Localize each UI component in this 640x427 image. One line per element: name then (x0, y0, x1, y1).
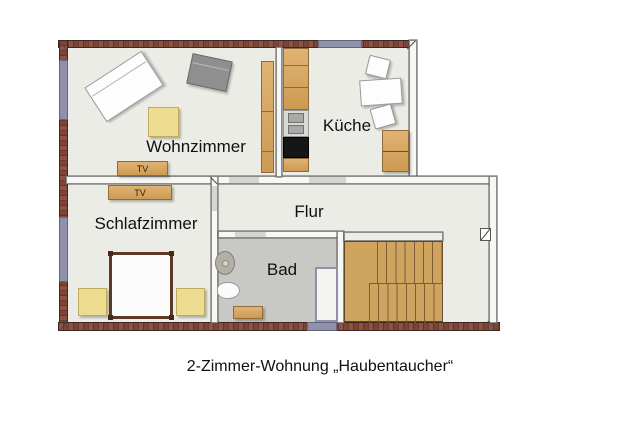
plan-caption: 2-Zimmer-Wohnung „Haubentaucher“ (0, 358, 640, 376)
room-label-flur: Flur (280, 202, 338, 222)
door-opening-kitchen (309, 177, 346, 183)
toilet (217, 282, 240, 299)
double-bed (109, 252, 173, 319)
bathroom-sink (215, 251, 235, 275)
bed-post (169, 315, 174, 320)
tv-lowboard-bedroom-text: TV (134, 188, 146, 198)
kitchen-table (359, 78, 403, 107)
bedroom-window-left (59, 217, 68, 282)
room-label-kueche: Küche (308, 116, 386, 136)
nightstand-right (176, 288, 205, 316)
wall-middle-horizontal (66, 176, 497, 184)
entry-door-symbol (480, 228, 491, 241)
shower (315, 267, 338, 322)
tv-lowboard-livingroom: TV (117, 161, 168, 176)
wall-livingroom-kitchen (276, 47, 282, 177)
bathroom-bench (233, 306, 263, 319)
kitchen-cabinet-upper (283, 48, 309, 110)
floor-plan: TV TV (0, 0, 640, 427)
wall-stairarea-right (489, 176, 497, 323)
sideboard-divider (383, 151, 408, 152)
sink-tap (222, 260, 229, 267)
tv-lowboard-bedroom: TV (108, 185, 172, 200)
room-label-wohnzimmer: Wohnzimmer (121, 137, 271, 157)
exterior-wall-top (58, 40, 417, 48)
bathroom-window-bottom (307, 322, 337, 331)
cabinet-divider (284, 65, 308, 66)
door-opening-livingroom (229, 177, 259, 183)
stair-flight-upper (377, 242, 443, 283)
kitchen-sideboard (382, 130, 409, 172)
coffee-table (148, 107, 179, 137)
bed-post (108, 251, 113, 256)
stair-railing (344, 232, 443, 241)
kitchen-stove (283, 137, 309, 158)
shelf-divider (262, 111, 273, 112)
kitchen-cabinet-lower (283, 158, 309, 172)
door-opening-bedroom (212, 186, 217, 211)
wall-kitchen-right (409, 40, 417, 177)
bed-post (169, 251, 174, 256)
door-opening-bath (235, 232, 266, 237)
sink-basin (288, 113, 304, 123)
sink-basin (288, 125, 304, 134)
cabinet-divider (284, 87, 308, 88)
kitchen-sink-unit (283, 110, 309, 137)
room-label-schlafzimmer: Schlafzimmer (76, 214, 216, 234)
tv-lowboard-livingroom-text: TV (137, 164, 149, 174)
exterior-wall-bottom (58, 322, 500, 331)
armchair-backrest-line (193, 62, 229, 71)
nightstand-left (78, 288, 107, 316)
livingroom-window-left (59, 60, 68, 120)
kitchen-counter (283, 48, 309, 172)
kitchen-window-top (318, 40, 362, 48)
staircase (344, 241, 443, 322)
stair-flight-lower (369, 283, 443, 323)
bed-post (108, 315, 113, 320)
room-label-bad: Bad (254, 260, 310, 280)
wall-bath-right (337, 231, 344, 323)
